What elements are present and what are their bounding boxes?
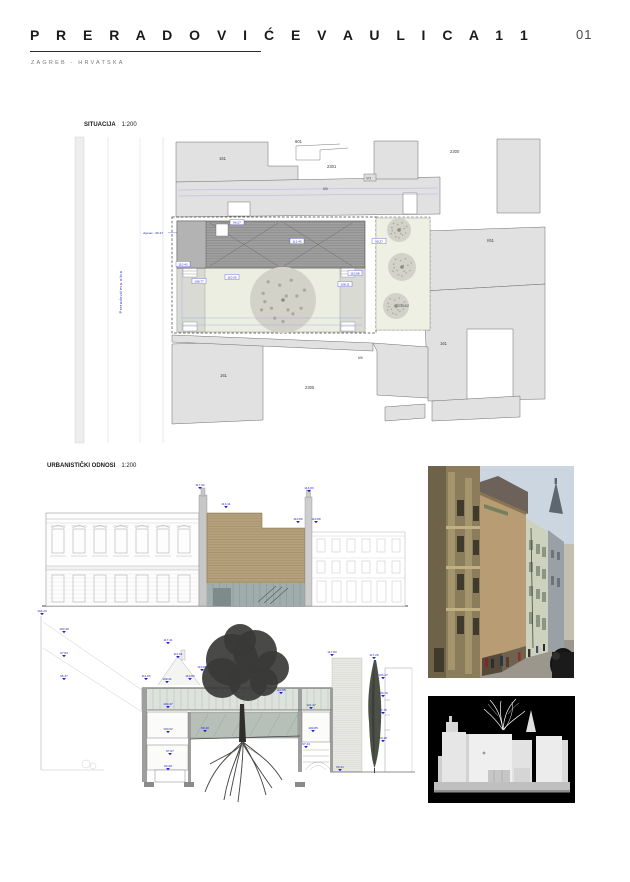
elevation-marker: 110.89: [293, 517, 303, 524]
photo-new-building: [480, 492, 526, 676]
svg-text:100.85: 100.85: [308, 726, 318, 730]
elevation-marker: 93.18: [379, 736, 387, 743]
svg-text:110.43: 110.43: [178, 262, 188, 266]
svg-text:99.41: 99.41: [336, 765, 344, 769]
svg-text:113.83: 113.83: [304, 486, 314, 490]
site-plan-title: SITUACIJA: [84, 122, 116, 128]
svg-text:97.76: 97.76: [379, 708, 387, 712]
svg-text:110.00: 110.00: [227, 275, 237, 279]
svg-text:110.88: 110.88: [350, 271, 360, 275]
svg-text:103.47: 103.47: [378, 673, 388, 677]
photo-motorcycle: [550, 648, 574, 678]
background-wall: [332, 658, 362, 772]
parcel-step-lines: [296, 144, 376, 181]
site-plan-label: SITUACIJA1:200: [84, 122, 137, 128]
elevation-marker: 117.83: [327, 650, 337, 657]
parcel-65i: 65i: [323, 187, 328, 191]
svg-text:93.18: 93.18: [379, 736, 387, 740]
svg-text:110.87: 110.87: [197, 665, 207, 669]
svg-text:113.41: 113.41: [221, 502, 231, 506]
cross-section: 104.23100.4097.8395.37117.41111.61110.87…: [37, 609, 415, 802]
svg-text:113.45: 113.45: [292, 239, 302, 243]
street-annotations: Preradovićeva ulica vijenac - 96.27: [119, 231, 177, 313]
elevation-marker: 104.23: [37, 609, 47, 616]
parcel-2300: 2300: [450, 149, 460, 154]
page-subtitle: ZAGREB - HRVATSKA: [31, 60, 125, 66]
svg-text:117.41: 117.41: [163, 638, 173, 642]
urban-section-scale: 1:200: [121, 463, 136, 469]
spot-elevation: 96.27: [230, 219, 244, 224]
elevation-marker: 117.26: [369, 653, 379, 660]
photo-green-facade: [526, 518, 548, 658]
parcel-i61: I/61: [487, 238, 495, 243]
page-number: 01: [576, 27, 592, 42]
svg-text:108.77: 108.77: [194, 279, 204, 283]
svg-text:117.92: 117.92: [195, 483, 205, 487]
svg-text:100.02: 100.02: [163, 727, 173, 731]
svg-text:96.40: 96.40: [201, 726, 209, 730]
svg-text:96.27: 96.27: [233, 220, 241, 224]
spot-elevation: 110.43: [176, 261, 190, 266]
massing-model-photo: [428, 696, 575, 803]
spot-elevation: 108.77: [192, 278, 206, 283]
street-photomontage: [428, 466, 574, 678]
parcel-2304-2: 2304/2: [398, 304, 409, 308]
svg-text:104.23: 104.23: [37, 609, 47, 613]
spot-elevation: 90.27: [372, 238, 386, 243]
elevation-marker: 111.93: [141, 674, 150, 681]
party-wall-left: [199, 488, 207, 606]
elevation-marker: 110.88: [311, 517, 321, 524]
historic-facade-left: [46, 513, 199, 606]
svg-text:95.37: 95.37: [60, 674, 68, 678]
svg-text:111.93: 111.93: [141, 674, 150, 678]
svg-text:100.16: 100.16: [378, 691, 388, 695]
svg-text:100.40: 100.40: [59, 627, 69, 631]
parcel-161-e: 161: [440, 341, 448, 346]
parcel-2301: 2301: [327, 164, 337, 169]
terrain-left: [41, 616, 142, 770]
spot-elevation: 110.00: [225, 274, 239, 279]
party-wall-right: [305, 490, 312, 606]
footings: [144, 782, 305, 787]
urban-section-label: URBANISTIČKI ODNOSI1:200: [47, 463, 136, 469]
page-title: P R E R A D O V I Ć E V A U L I C A 1 1: [30, 27, 534, 43]
historic-facade-right: [312, 532, 405, 606]
elevation-marker: 113.41: [221, 502, 231, 509]
elevation-marker: 97.83: [60, 651, 68, 658]
site-plan-scale: 1:200: [122, 122, 137, 128]
title-underline: [30, 51, 261, 52]
spot-elevation: 108.11: [338, 281, 352, 286]
svg-text:97.83: 97.83: [60, 651, 68, 655]
svg-text:97.67: 97.67: [166, 749, 174, 753]
presentation-sheet: P R E R A D O V I Ć E V A U L I C A 1 1 …: [0, 0, 630, 882]
elevation-marker: 113.83: [304, 486, 314, 493]
svg-text:117.83: 117.83: [327, 650, 337, 654]
parcel-vo: VO: [366, 177, 371, 181]
svg-text:117.26: 117.26: [369, 653, 379, 657]
svg-text:109.41: 109.41: [162, 677, 172, 681]
svg-text:110.88: 110.88: [311, 517, 321, 521]
parcel-601: 601: [295, 139, 303, 144]
photo-far-buildings: [564, 544, 574, 640]
courtyard-tree: [250, 267, 316, 333]
urban-relations-drawing: 117.92113.41113.83110.89110.88: [28, 472, 420, 835]
new-building-elevation: [207, 513, 305, 606]
spot-elevation: 110.88: [348, 270, 362, 275]
elevation-marker: 100.40: [59, 627, 69, 634]
svg-text:108.11: 108.11: [340, 282, 350, 286]
cypress-tree: [368, 660, 381, 773]
parcel-161-sw: 161: [220, 373, 228, 378]
parcel-2305: 2305: [305, 385, 315, 390]
svg-text:90.27: 90.27: [375, 239, 383, 243]
cornice-annotation: vijenac - 96.27: [143, 231, 163, 235]
elevation-marker: 97.43: [302, 742, 310, 749]
svg-text:110.85: 110.85: [276, 688, 286, 692]
svg-text:97.43: 97.43: [302, 742, 310, 746]
elevation-marker: 103.47: [378, 673, 388, 680]
photo-left-building: [428, 466, 480, 678]
svg-text:100.47: 100.47: [163, 702, 173, 706]
model-base: [434, 782, 570, 790]
spot-elevation: 113.45: [290, 238, 304, 243]
street-name-label: Preradovićeva ulica: [119, 270, 123, 313]
elevation-marker: 95.37: [60, 674, 68, 681]
svg-text:110.83: 110.83: [185, 674, 195, 678]
site-plan-drawing: 161 601 2301 VO 65i 2300 I/61 2304/2 161…: [40, 132, 630, 447]
elevation-marker: 117.41: [163, 638, 173, 645]
svg-text:110.89: 110.89: [293, 517, 303, 521]
svg-text:92.28: 92.28: [164, 764, 172, 768]
street-elevation: 117.92113.41113.83110.89110.88: [42, 483, 408, 606]
parcel-161-nw: 161: [219, 156, 227, 161]
svg-text:111.61: 111.61: [173, 652, 182, 656]
parcel-65i-s: 65i: [358, 356, 363, 360]
svg-text:101.47: 101.47: [306, 703, 316, 707]
urban-section-title: URBANISTIČKI ODNOSI: [47, 463, 115, 469]
